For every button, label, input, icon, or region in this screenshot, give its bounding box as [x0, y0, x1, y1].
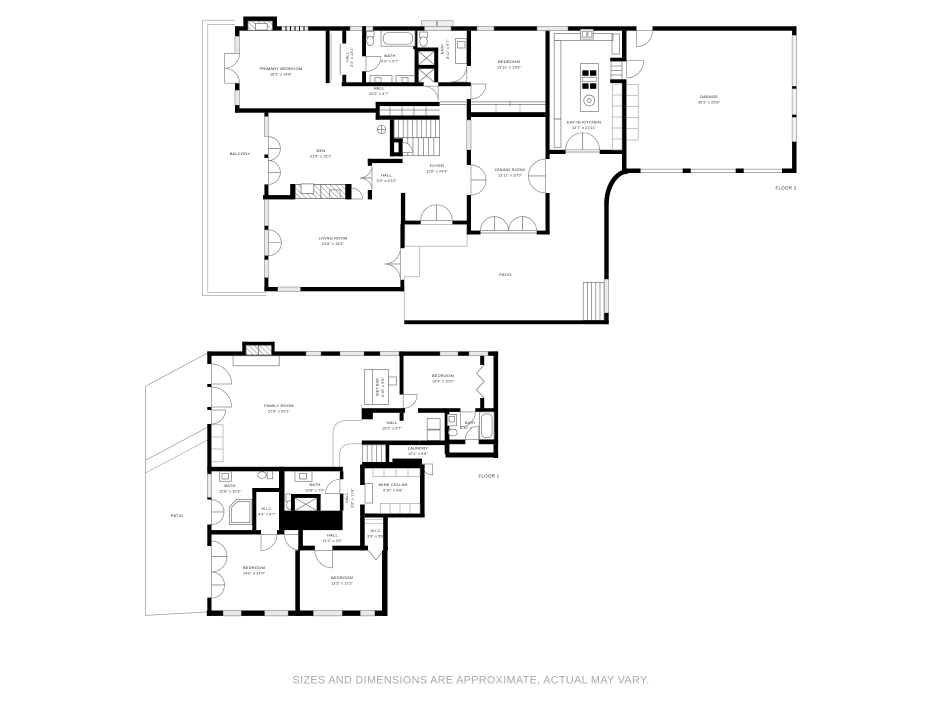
svg-text:21'9" x 15'1": 21'9" x 15'1" — [310, 155, 333, 159]
svg-text:FOYER: FOYER — [430, 163, 445, 168]
svg-text:BATH: BATH — [465, 421, 475, 425]
svg-text:WINE CELLAR: WINE CELLAR — [378, 482, 407, 487]
svg-text:3'9" x 5'6": 3'9" x 5'6" — [367, 535, 385, 539]
svg-text:WET BAR: WET BAR — [376, 378, 380, 396]
svg-text:10'3" x 5'7": 10'3" x 5'7" — [382, 427, 402, 431]
svg-text:13'11" x 13'6": 13'11" x 13'6" — [497, 66, 522, 70]
svg-text:LIVING ROOM: LIVING ROOM — [319, 236, 348, 241]
svg-text:FLOOR 2: FLOOR 2 — [776, 186, 797, 191]
svg-text:PRIMARY BEDROOM: PRIMARY BEDROOM — [260, 66, 303, 71]
svg-text:14'4" x 10'0": 14'4" x 10'0" — [432, 380, 455, 384]
svg-text:BEDROOM: BEDROOM — [243, 565, 265, 570]
svg-text:BEDROOM: BEDROOM — [498, 59, 520, 64]
svg-text:10'1" x 8'8": 10'1" x 8'8" — [408, 452, 428, 456]
svg-text:13'11" x 20'0": 13'11" x 20'0" — [498, 174, 523, 178]
svg-text:4'3" x 6'7": 4'3" x 6'7" — [258, 513, 276, 517]
svg-text:HALL: HALL — [381, 173, 392, 178]
svg-text:FLOOR 1: FLOOR 1 — [479, 474, 500, 479]
svg-text:30'3" x 25'6": 30'3" x 25'6" — [698, 101, 721, 105]
svg-text:13'7" x 21'11": 13'7" x 21'11" — [572, 126, 597, 130]
svg-text:3'4" x 13'1": 3'4" x 13'1" — [350, 46, 354, 66]
svg-text:14'0" x 14'9": 14'0" x 14'9" — [243, 572, 266, 576]
svg-text:5'9" x 8'10": 5'9" x 8'10" — [377, 179, 397, 183]
svg-text:HALL: HALL — [345, 52, 349, 62]
svg-text:11'2" x 3'0": 11'2" x 3'0" — [323, 539, 343, 543]
svg-text:HALL: HALL — [327, 533, 338, 538]
svg-text:13'5" x 11'3": 13'5" x 11'3" — [331, 582, 353, 586]
svg-text:EAT-IN KITCHEN: EAT-IN KITCHEN — [567, 119, 601, 124]
svg-text:FAMILY ROOM: FAMILY ROOM — [264, 403, 294, 408]
svg-text:GARAGE: GARAGE — [700, 94, 718, 99]
svg-text:HALL: HALL — [345, 493, 349, 503]
svg-text:PATIO: PATIO — [171, 513, 183, 518]
svg-text:8'11" x 9'7": 8'11" x 9'7" — [446, 39, 450, 59]
svg-text:11'8" x 24'9": 11'8" x 24'9" — [426, 170, 448, 174]
svg-text:BATH: BATH — [309, 482, 320, 487]
svg-text:9'10" x 8'8": 9'10" x 8'8" — [383, 489, 403, 493]
svg-text:DINING ROOM: DINING ROOM — [495, 167, 525, 172]
svg-text:24'6" x 16'3": 24'6" x 16'3" — [322, 242, 345, 246]
svg-text:BALCONY: BALCONY — [230, 151, 251, 156]
svg-text:DEN: DEN — [316, 148, 325, 153]
svg-text:LAUNDRY: LAUNDRY — [408, 446, 429, 451]
svg-text:BEDROOM: BEDROOM — [432, 373, 454, 378]
svg-text:SIZES AND DIMENSIONS ARE APPRO: SIZES AND DIMENSIONS ARE APPROXIMATE, AC… — [293, 675, 650, 687]
svg-text:27'8" x 20'1": 27'8" x 20'1" — [268, 410, 291, 414]
svg-text:W.I.C.: W.I.C. — [371, 529, 382, 533]
svg-text:16'3" x 14'8": 16'3" x 14'8" — [270, 73, 293, 77]
svg-text:BEDROOM: BEDROOM — [331, 575, 353, 580]
svg-text:6'10" x 9'6": 6'10" x 9'6" — [381, 376, 385, 396]
svg-text:12'8" x 10'3": 12'8" x 10'3" — [219, 490, 242, 494]
svg-text:PATIO: PATIO — [499, 272, 511, 277]
svg-text:BATH: BATH — [441, 44, 445, 54]
svg-text:10'8" x 7'4": 10'8" x 7'4" — [305, 489, 325, 493]
svg-text:W.I.C.: W.I.C. — [262, 507, 273, 511]
svg-text:9'0" x 9'7": 9'0" x 9'7" — [381, 60, 399, 64]
svg-text:HALL: HALL — [374, 86, 385, 91]
svg-text:3'8" x 11'8": 3'8" x 11'8" — [351, 488, 355, 508]
svg-text:HALL: HALL — [387, 420, 398, 425]
svg-text:BATH: BATH — [384, 53, 395, 58]
svg-text:BATH: BATH — [224, 483, 235, 488]
svg-text:20'3" x 4'7": 20'3" x 4'7" — [369, 92, 389, 96]
